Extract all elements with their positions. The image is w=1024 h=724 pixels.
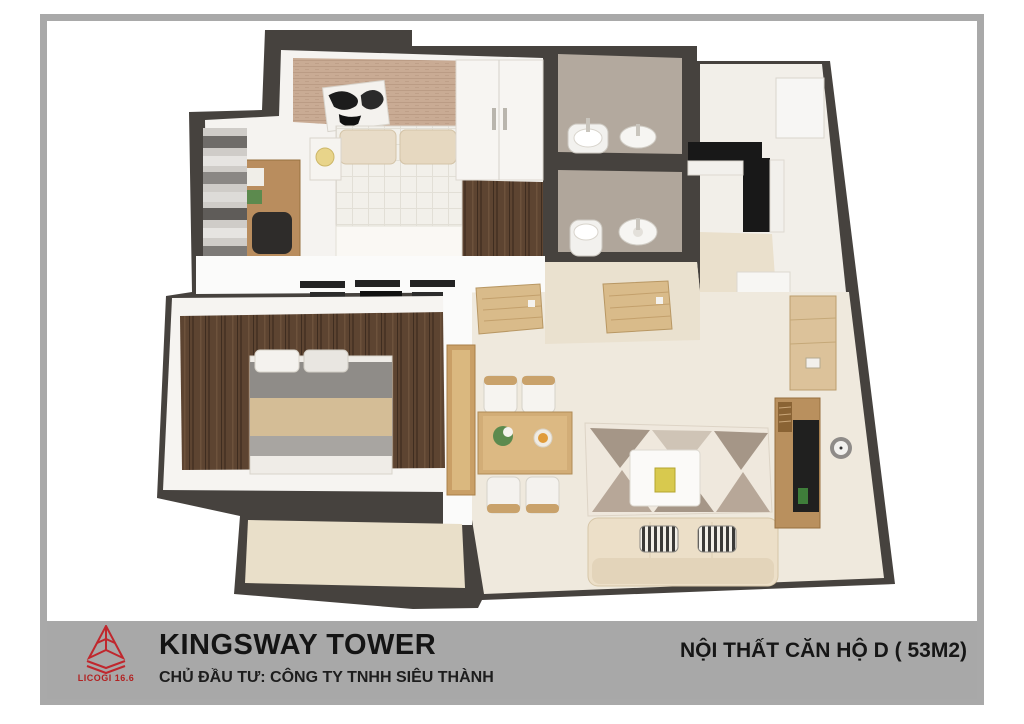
coffee-table [630, 450, 700, 506]
project-titles: KINGSWAY TOWER CHỦ ĐẦU TƯ: CÔNG TY TNHH … [159, 630, 494, 687]
footer-band: LICOGI 16.6 KINGSWAY TOWER CHỦ ĐẦU TƯ: C… [47, 621, 977, 699]
desk-chair [252, 212, 292, 254]
kitchen [688, 64, 846, 322]
sofa [588, 518, 778, 586]
poster-page: LICOGI 16.6 KINGSWAY TOWER CHỦ ĐẦU TƯ: C… [0, 0, 1024, 724]
project-title: KINGSWAY TOWER [159, 630, 494, 662]
balcony-floor [245, 520, 465, 588]
tv-unit [775, 398, 820, 528]
bedroom-1 [203, 50, 543, 290]
dining-chair-back [484, 376, 517, 385]
striped-pillow [640, 526, 678, 552]
balcony [245, 520, 465, 588]
wall-clock [830, 437, 852, 459]
dining-table-top [483, 416, 567, 470]
wall-shelf-vent [300, 281, 345, 288]
floorplan-illustration [0, 0, 1024, 724]
bar-counter-top [452, 350, 470, 490]
striped-pillow [698, 526, 736, 552]
nightstand [310, 138, 341, 180]
tv-image [798, 488, 808, 504]
kitchen-cabinet [770, 160, 784, 232]
bed-1 [336, 126, 462, 262]
logo-mark-icon [77, 625, 135, 675]
door-bedroom-2 [603, 281, 672, 333]
door-bedroom-1 [476, 284, 543, 334]
toilet [570, 220, 602, 256]
wall-shelf-vent [410, 280, 455, 287]
fridge [776, 78, 824, 138]
wall-art [323, 80, 390, 131]
logo-text: LICOGI 16.6 [63, 673, 149, 683]
bathroom-1 [558, 54, 682, 154]
bedroom-2 [163, 296, 446, 492]
project-subtitle: CHỦ ĐẦU TƯ: CÔNG TY TNHH SIÊU THÀNH [159, 669, 494, 687]
apartment-label: NỘI THẤT CĂN HỘ D ( 53M2) [680, 639, 967, 663]
kitchen-counter [743, 158, 770, 232]
dining-chair-back [522, 376, 555, 385]
bathroom-2 [558, 170, 682, 256]
company-logo: LICOGI 16.6 [63, 625, 149, 697]
fruit [538, 433, 548, 443]
entry-cabinet [790, 296, 836, 390]
wall-shelf-vent [355, 280, 400, 287]
dining-chair-back [487, 504, 520, 513]
wardrobe-1 [456, 60, 543, 180]
bed-2 [250, 350, 392, 474]
kitchen-cabinet [688, 161, 743, 175]
dining-chair-back [526, 504, 559, 513]
flower [503, 427, 513, 437]
table-lamp [316, 148, 334, 166]
